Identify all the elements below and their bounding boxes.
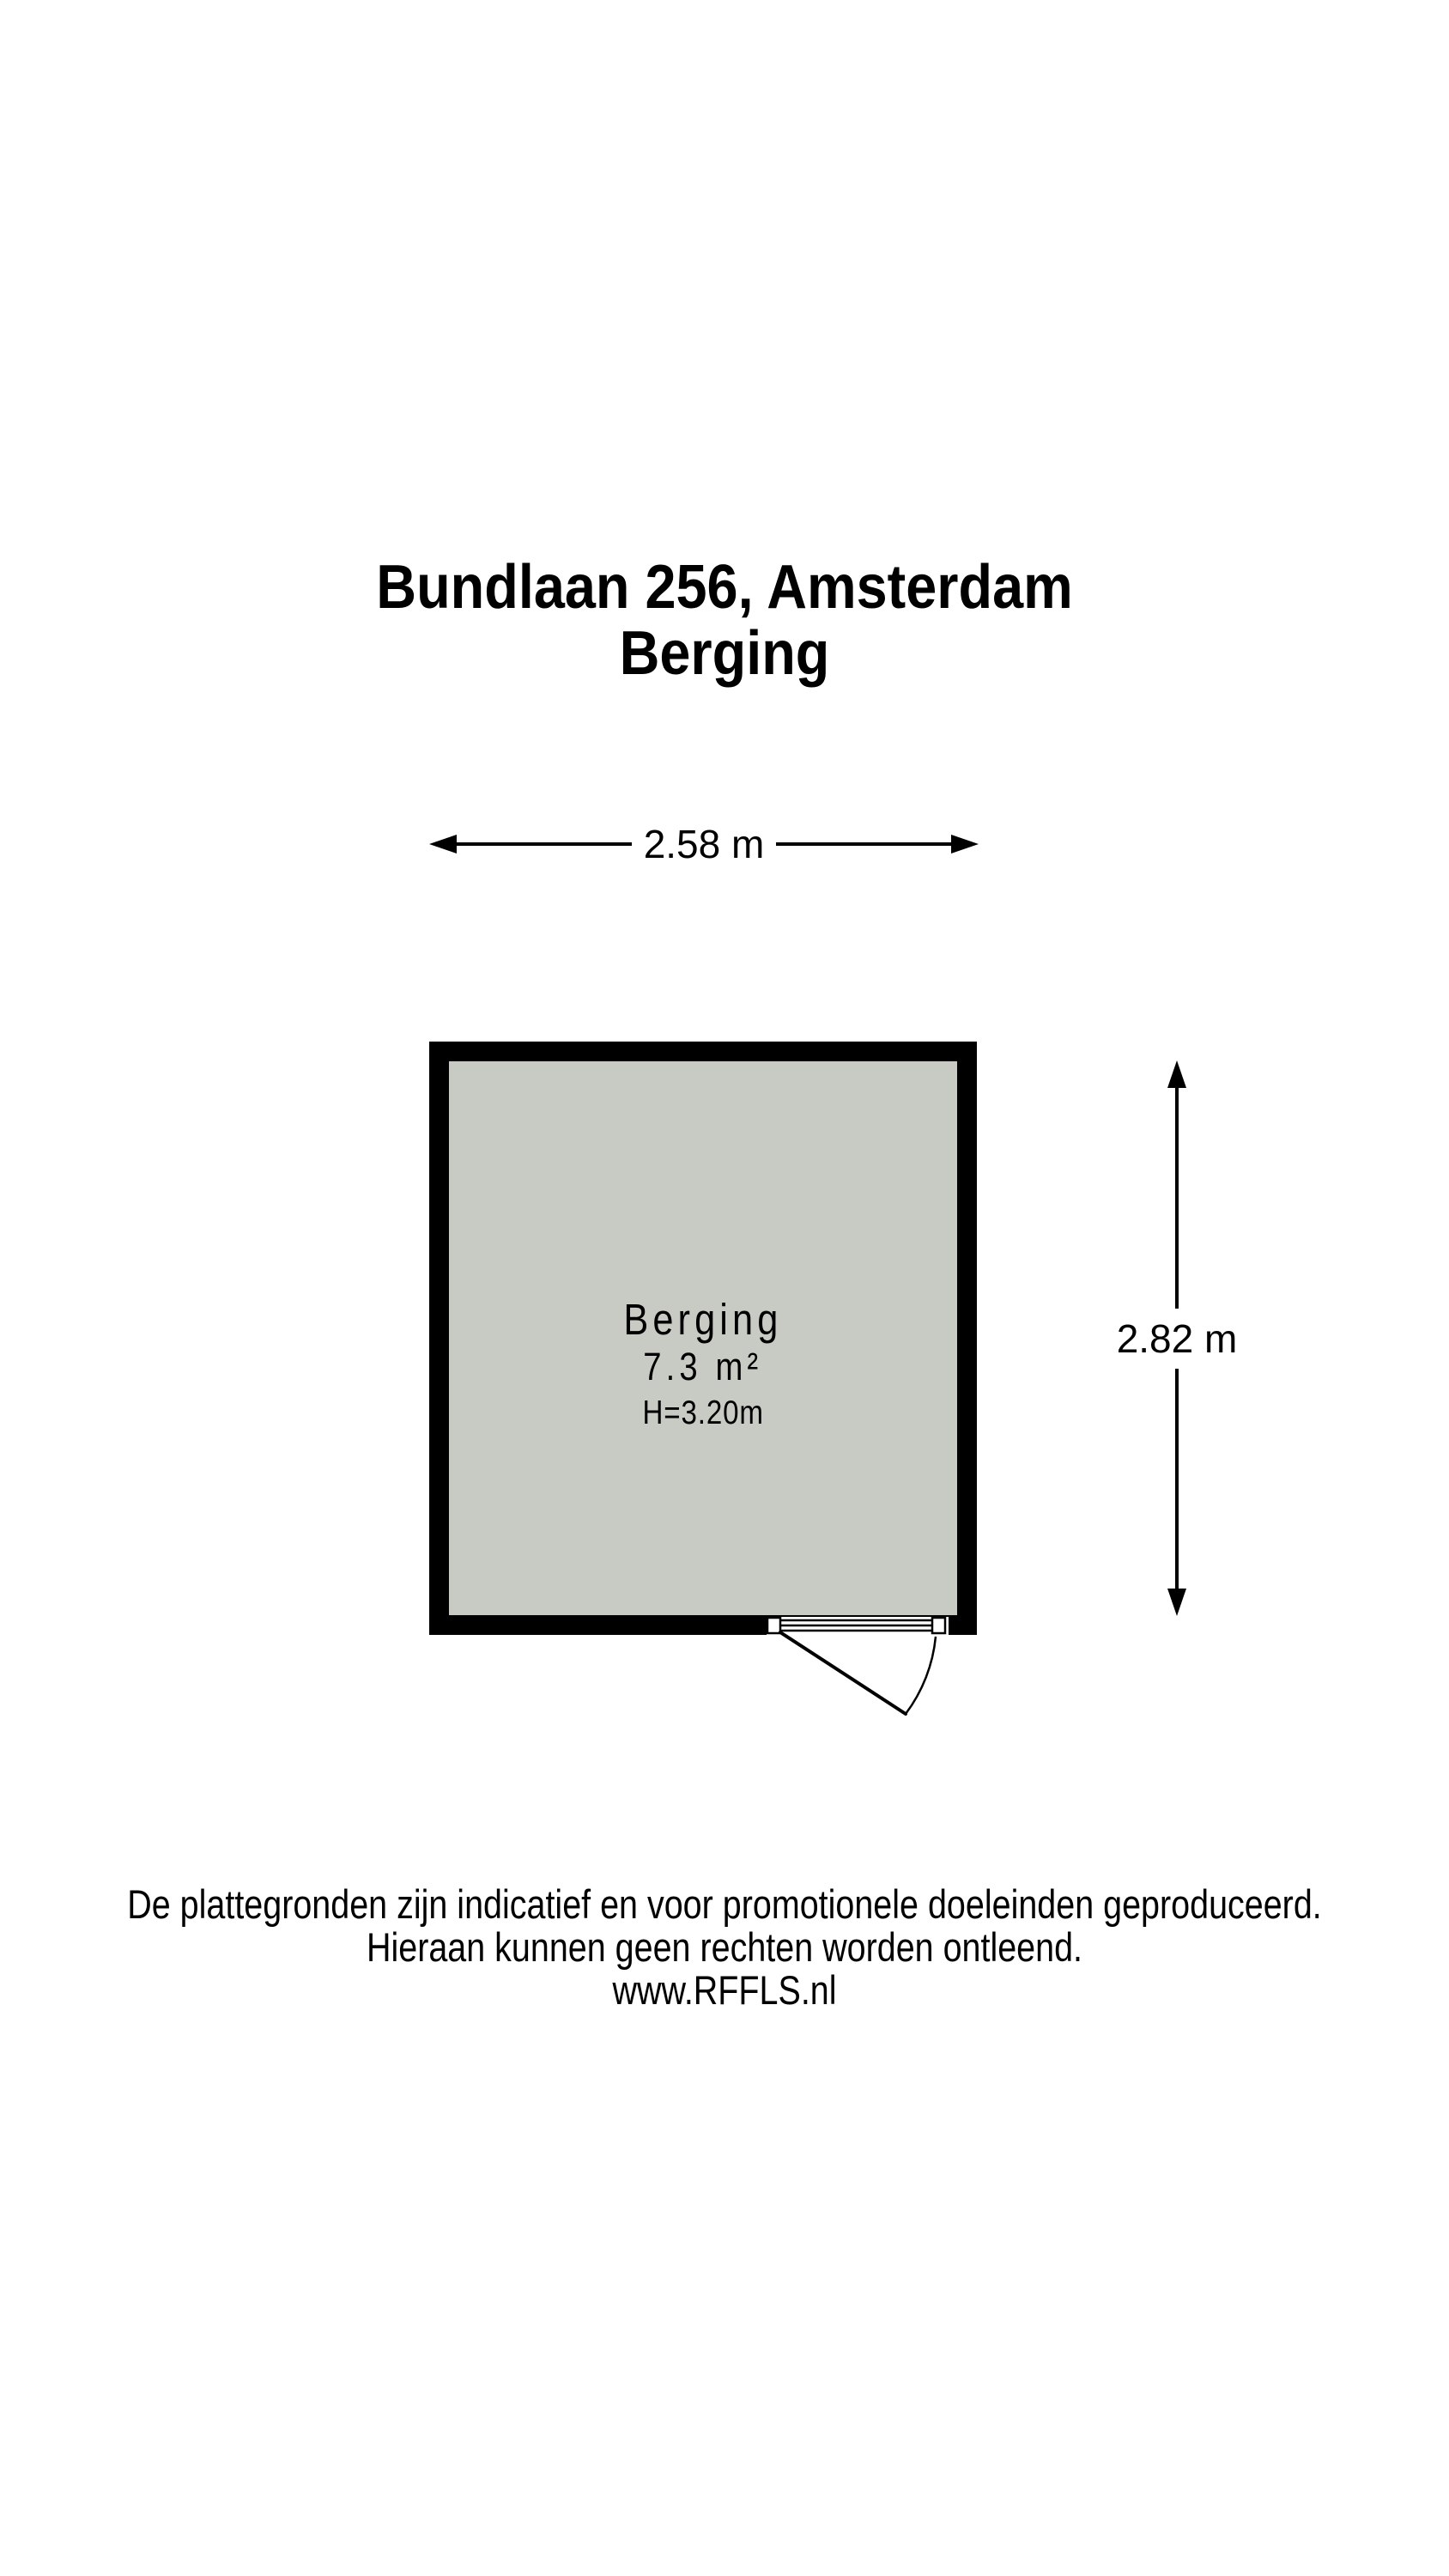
footer-disclaimer: De plattegronden zijn indicatief en voor…: [116, 1883, 1333, 2012]
title-room-name: Berging: [72, 621, 1376, 687]
page-title: Bundlaan 256, Amsterdam Berging: [72, 555, 1376, 687]
dimension-line-bottom: [1175, 1369, 1179, 1589]
dimension-arrow-right-icon: [951, 835, 979, 854]
room-name-label: Berging: [623, 1296, 782, 1344]
dimension-line-left: [457, 842, 632, 846]
room-berging: Berging 7.3 m² H=3.20m: [429, 1042, 977, 1635]
room-area-label: 7.3 m²: [643, 1346, 762, 1388]
width-dimension: 2.58 m: [429, 825, 979, 863]
website-label: www.RFFLS.nl: [116, 1969, 1333, 2012]
height-dimension-label: 2.82 m: [1117, 1315, 1238, 1362]
dimension-line-right: [776, 842, 951, 846]
height-dimension: 2.82 m: [1156, 1060, 1197, 1616]
room-ceiling-height-label: H=3.20m: [642, 1394, 763, 1433]
disclaimer-line-2: Hieraan kunnen geen rechten worden ontle…: [116, 1926, 1333, 1969]
floorplan-page: Bundlaan 256, Amsterdam Berging 2.58 m B…: [0, 0, 1449, 2576]
dimension-arrow-left-icon: [429, 835, 457, 854]
dimension-arrow-up-icon: [1167, 1060, 1186, 1088]
dimension-line-top: [1175, 1088, 1179, 1309]
width-dimension-label: 2.58 m: [644, 821, 765, 867]
title-address: Bundlaan 256, Amsterdam: [72, 555, 1376, 621]
disclaimer-line-1: De plattegronden zijn indicatief en voor…: [116, 1883, 1333, 1926]
dimension-arrow-down-icon: [1167, 1589, 1186, 1616]
